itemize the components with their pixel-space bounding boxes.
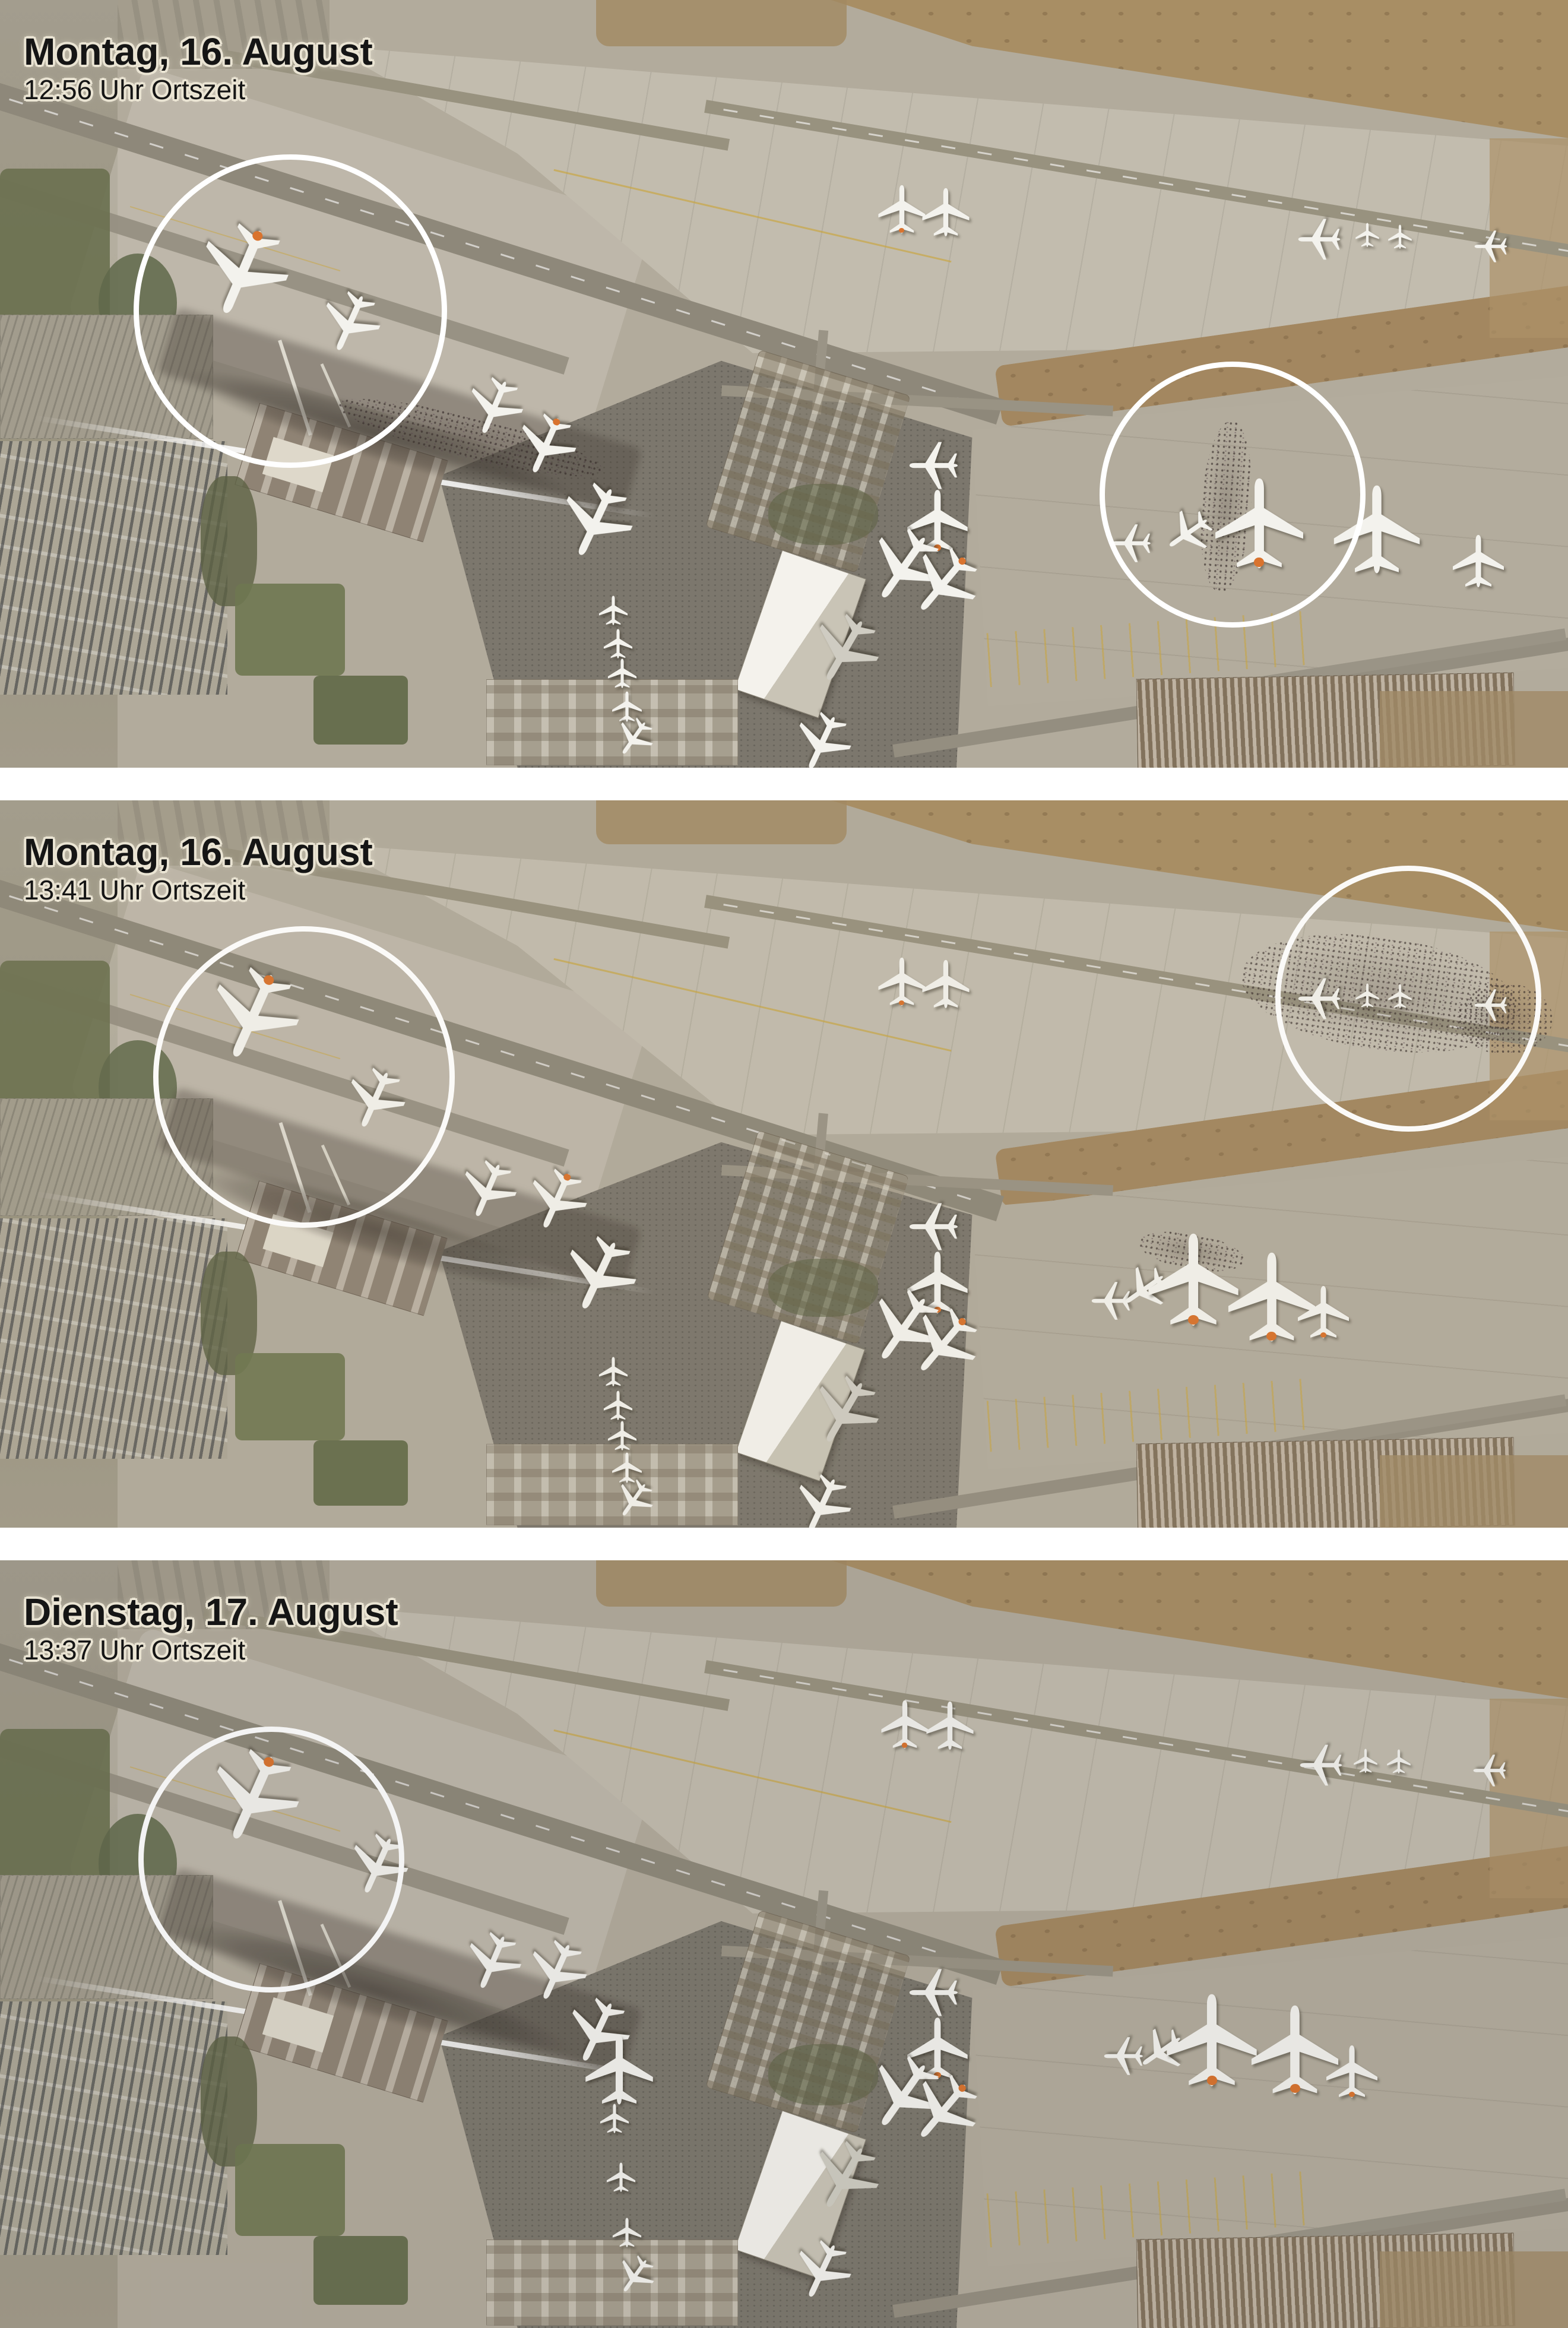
airplane-icon (1208, 477, 1310, 579)
airplane-icon (1386, 224, 1414, 252)
tail-livery-accent (899, 228, 904, 233)
satellite-image-1 (0, 0, 1568, 768)
airplane-glyph (1298, 975, 1345, 1022)
airplane-icon (1298, 975, 1345, 1022)
panel-label-3: Dienstag, 17. August 13:37 Uhr Ortszeit (24, 1591, 398, 1667)
airplane-glyph (1111, 521, 1155, 565)
panel-time: 12:56 Uhr Ortszeit (24, 74, 373, 106)
airplane-icon (1354, 983, 1381, 1011)
satellite-panel-2: Montag, 16. August 13:41 Uhr Ortszeit (0, 800, 1568, 1528)
tail-livery-accent (1254, 558, 1264, 566)
tail-livery-accent (899, 1000, 904, 1005)
airplane-icon (795, 2123, 899, 2226)
tail-livery-accent (1188, 1315, 1199, 1325)
panel-label-1: Montag, 16. August 12:56 Uhr Ortszeit (24, 31, 373, 106)
airplane-icon (1322, 2045, 1382, 2104)
airplane-icon (781, 1459, 866, 1528)
airplane-icon (1385, 1749, 1412, 1776)
airplane-glyph (580, 2035, 658, 2113)
airplane-glyph (1352, 1749, 1379, 1776)
panel-label-2: Montag, 16. August 13:41 Uhr Ortszeit (24, 831, 373, 907)
airplane-glyph (1474, 987, 1511, 1024)
airplane-glyph (189, 1727, 322, 1860)
airplane-icon (1111, 521, 1155, 565)
airplane-icon (1294, 1285, 1353, 1345)
airplane-glyph (604, 2162, 638, 2196)
airplane-glyph (607, 2244, 666, 2304)
airplane-glyph (606, 1421, 639, 1454)
satellite-panel-3: Dienstag, 17. August 13:37 Uhr Ortszeit (0, 1560, 1568, 2328)
panel-time: 13:41 Uhr Ortszeit (24, 874, 373, 907)
airplane-glyph (795, 1357, 899, 1461)
tail-livery-accent (1320, 1332, 1326, 1338)
tail-livery-accent (1349, 2092, 1355, 2097)
airplane-icon (795, 596, 899, 699)
airplane-icon (1449, 534, 1508, 594)
airplane-icon (332, 1053, 420, 1141)
airplane-icon (189, 1727, 322, 1860)
airplane-icon (909, 1965, 964, 2020)
airplane-glyph (1327, 484, 1427, 584)
airplane-glyph (332, 1053, 420, 1141)
airplane-glyph (781, 1459, 866, 1528)
airplane-glyph (795, 2123, 899, 2226)
airplane-icon (1354, 223, 1381, 250)
satellite-panel-1: Montag, 16. August 12:56 Uhr Ortszeit (0, 0, 1568, 768)
satellite-image-2 (0, 800, 1568, 1528)
airplane-glyph (598, 2104, 631, 2137)
airplane-glyph (1386, 984, 1414, 1011)
tail-livery-accent (1266, 1332, 1276, 1341)
airplane-icon (781, 2225, 866, 2311)
airplane-icon (1474, 228, 1511, 265)
airplane-icon (1386, 984, 1414, 1011)
airplane-icon (597, 596, 630, 629)
airplane-icon (1300, 1741, 1347, 1789)
airplane-glyph (601, 629, 635, 662)
airplane-icon (597, 1357, 630, 1390)
airplane-icon (1352, 1749, 1379, 1776)
airplane-glyph (1300, 1741, 1347, 1789)
airplane-glyph (909, 1199, 964, 1254)
airplane-glyph (923, 1701, 977, 1756)
airplane-icon (598, 2104, 631, 2137)
panel-date: Montag, 16. August (24, 831, 373, 874)
panel-date: Dienstag, 17. August (24, 1591, 398, 1634)
airplane-icon (1298, 216, 1345, 263)
airplane-icon (918, 188, 973, 242)
airplane-glyph (597, 1357, 630, 1390)
airplane-glyph (1385, 1749, 1412, 1776)
tail-livery-accent (1290, 2084, 1300, 2093)
airplane-icon (179, 201, 311, 333)
airplane-glyph (179, 201, 311, 333)
airplane-icon (606, 1421, 639, 1454)
panel-date: Montag, 16. August (24, 31, 373, 74)
airplane-glyph (1449, 534, 1508, 594)
airplane-glyph (1354, 223, 1381, 250)
panel-time: 13:37 Uhr Ortszeit (24, 1634, 398, 1667)
airplane-glyph (606, 658, 639, 692)
airplane-glyph (781, 2225, 866, 2311)
airplane-glyph (795, 596, 899, 699)
annotation-layer (0, 1560, 1568, 2328)
airplane-icon (923, 1701, 977, 1756)
annotation-layer (0, 0, 1568, 768)
airplane-icon (781, 698, 866, 768)
airplane-icon (580, 2035, 658, 2113)
airplane-glyph (781, 698, 866, 768)
airplane-icon (604, 2162, 638, 2196)
airplane-icon (909, 1199, 964, 1254)
satellite-image-3 (0, 1560, 1568, 2328)
airplane-icon (1474, 987, 1511, 1024)
airplane-glyph (909, 438, 964, 493)
airplane-glyph (909, 1965, 964, 2020)
airplane-glyph (1298, 216, 1345, 263)
airplane-icon (610, 2218, 644, 2251)
airplane-icon (189, 945, 322, 1078)
airplane-icon (601, 1391, 635, 1424)
airplane-icon (1473, 1752, 1510, 1789)
airplane-glyph (610, 2218, 644, 2251)
airplane-glyph (1354, 983, 1381, 1011)
airplane-icon (601, 629, 635, 662)
airplane-glyph (308, 276, 395, 364)
tail-livery-accent (902, 1743, 907, 1747)
airplane-glyph (597, 596, 630, 629)
airplane-glyph (918, 959, 973, 1014)
satellite-comparison-graphic: Montag, 16. August 12:56 Uhr Ortszeit Mo… (0, 0, 1568, 2328)
airplane-icon (1327, 484, 1427, 584)
annotation-layer (0, 800, 1568, 1528)
tail-livery-accent (1207, 2076, 1218, 2085)
airplane-glyph (189, 945, 322, 1078)
airplane-glyph (918, 188, 973, 242)
airplane-icon (918, 959, 973, 1014)
airplane-icon (335, 1819, 423, 1907)
airplane-icon (795, 1357, 899, 1461)
airplane-icon (607, 2244, 666, 2304)
airplane-glyph (1473, 1752, 1510, 1789)
airplane-icon (909, 438, 964, 493)
airplane-glyph (1386, 224, 1414, 252)
airplane-glyph (1474, 228, 1511, 265)
airplane-glyph (335, 1819, 423, 1907)
airplane-icon (308, 276, 395, 364)
airplane-glyph (601, 1391, 635, 1424)
airplane-icon (606, 658, 639, 692)
